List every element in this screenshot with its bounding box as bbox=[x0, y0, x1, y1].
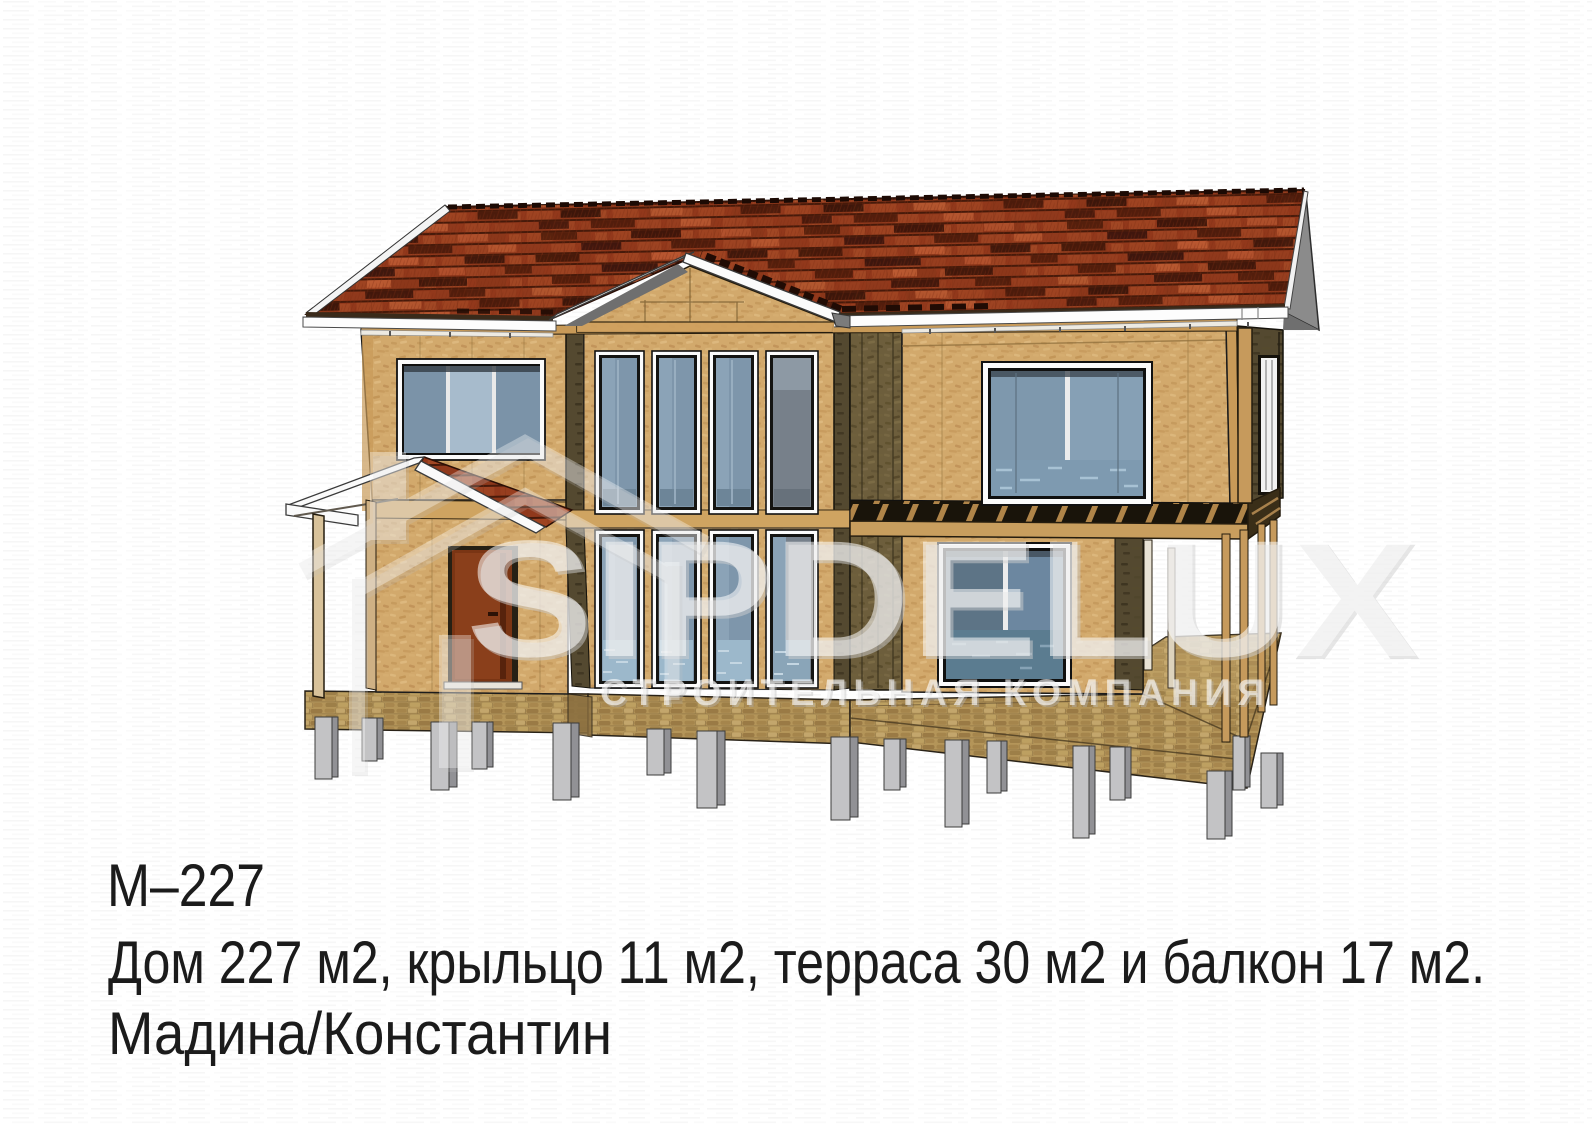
svg-text:СТРОИТЕЛЬНАЯ КОМПАНИЯ: СТРОИТЕЛЬНАЯ КОМПАНИЯ bbox=[600, 672, 1268, 713]
svg-text:Мадина/Константин: Мадина/Константин bbox=[108, 1000, 612, 1067]
svg-text:Дом 227 м2, крыльцо 11 м2, тер: Дом 227 м2, крыльцо 11 м2, терраса 30 м2… bbox=[108, 929, 1485, 996]
svg-text:М–227: М–227 bbox=[107, 852, 265, 919]
